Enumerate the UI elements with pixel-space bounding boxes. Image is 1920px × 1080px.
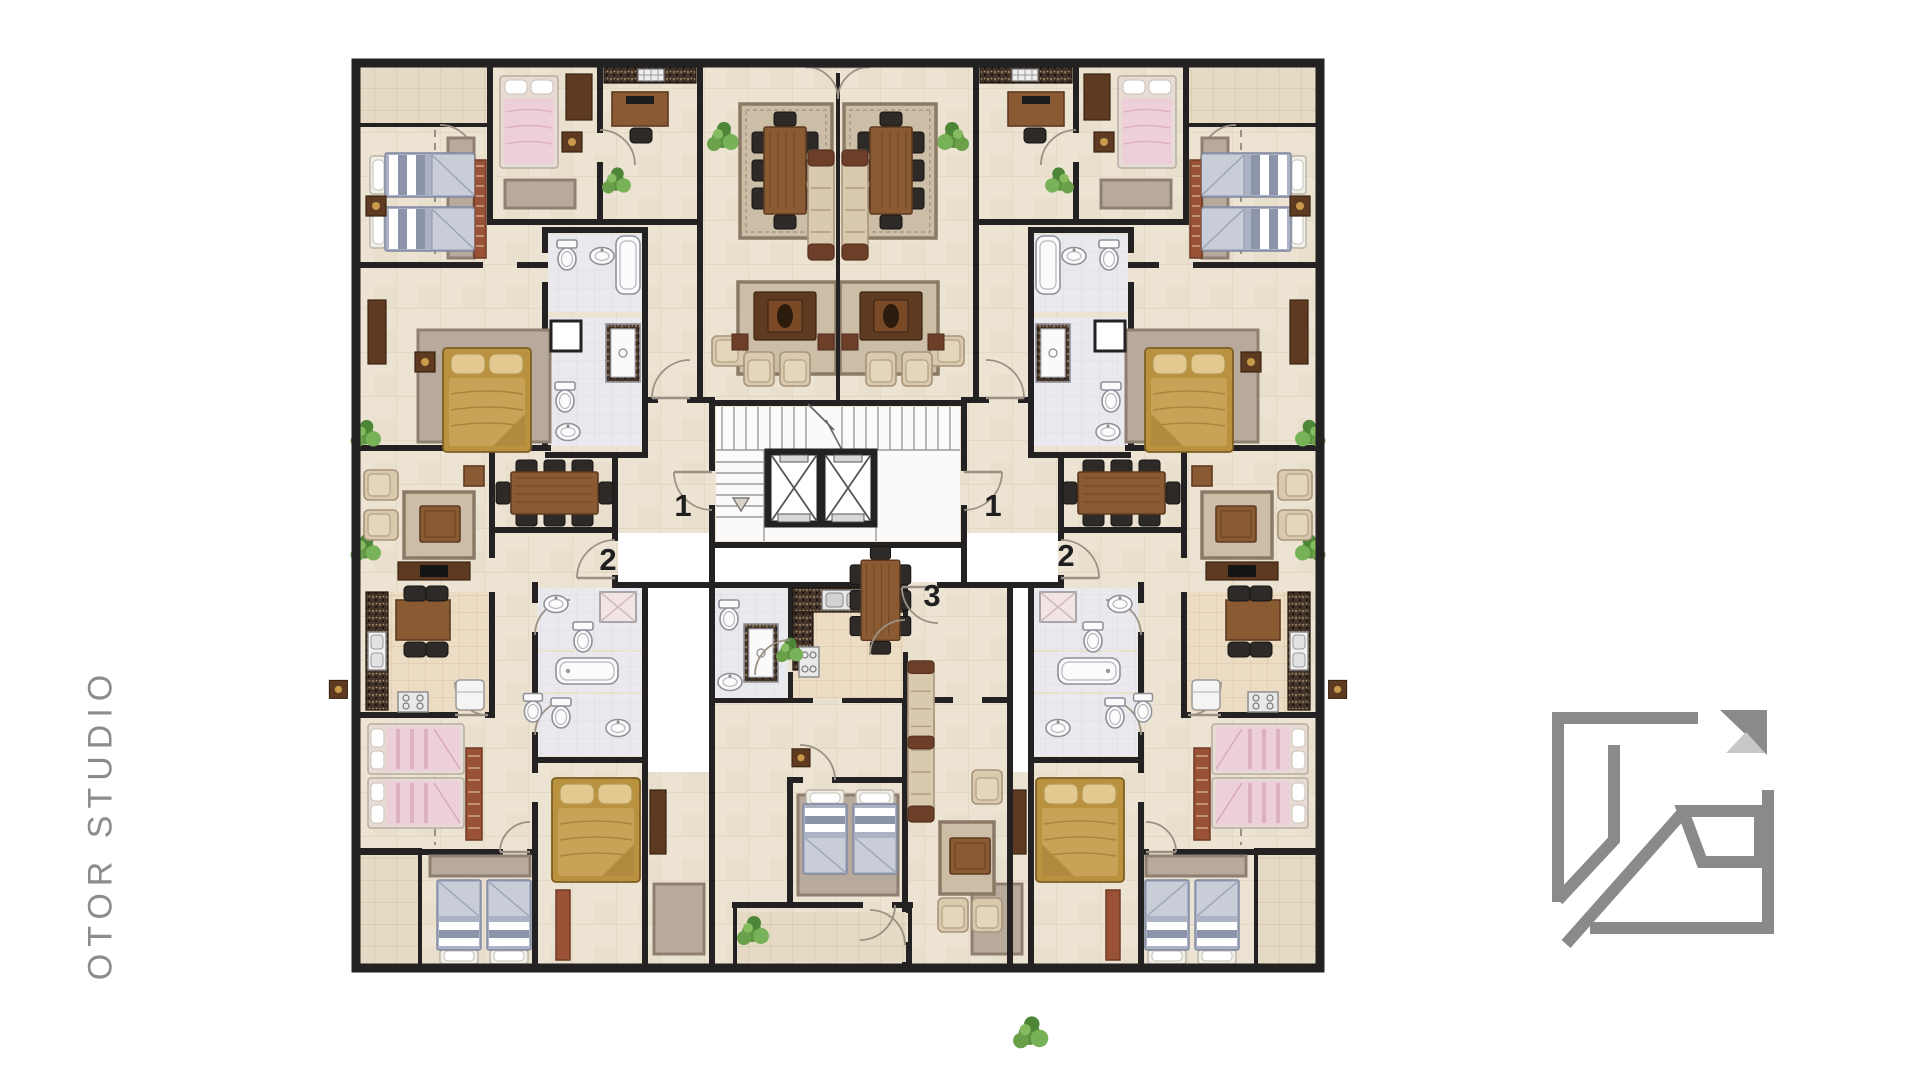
unit-entrance-label-2-right: 2: [1057, 538, 1074, 573]
unit-entrance-label-3-center: 3: [923, 578, 940, 613]
unit-entrance-label-2-left: 2: [599, 542, 616, 577]
otor-studio-logo: [1550, 710, 1780, 952]
elevator-left-icon: [768, 452, 820, 524]
unit-entrance-label-1-left: 1: [674, 488, 691, 523]
stair-core: [716, 404, 960, 541]
elevator-right-icon: [822, 452, 874, 524]
otor-studio-logo-icon: [1550, 710, 1780, 952]
unit-entrance-label-1-right: 1: [984, 488, 1001, 523]
